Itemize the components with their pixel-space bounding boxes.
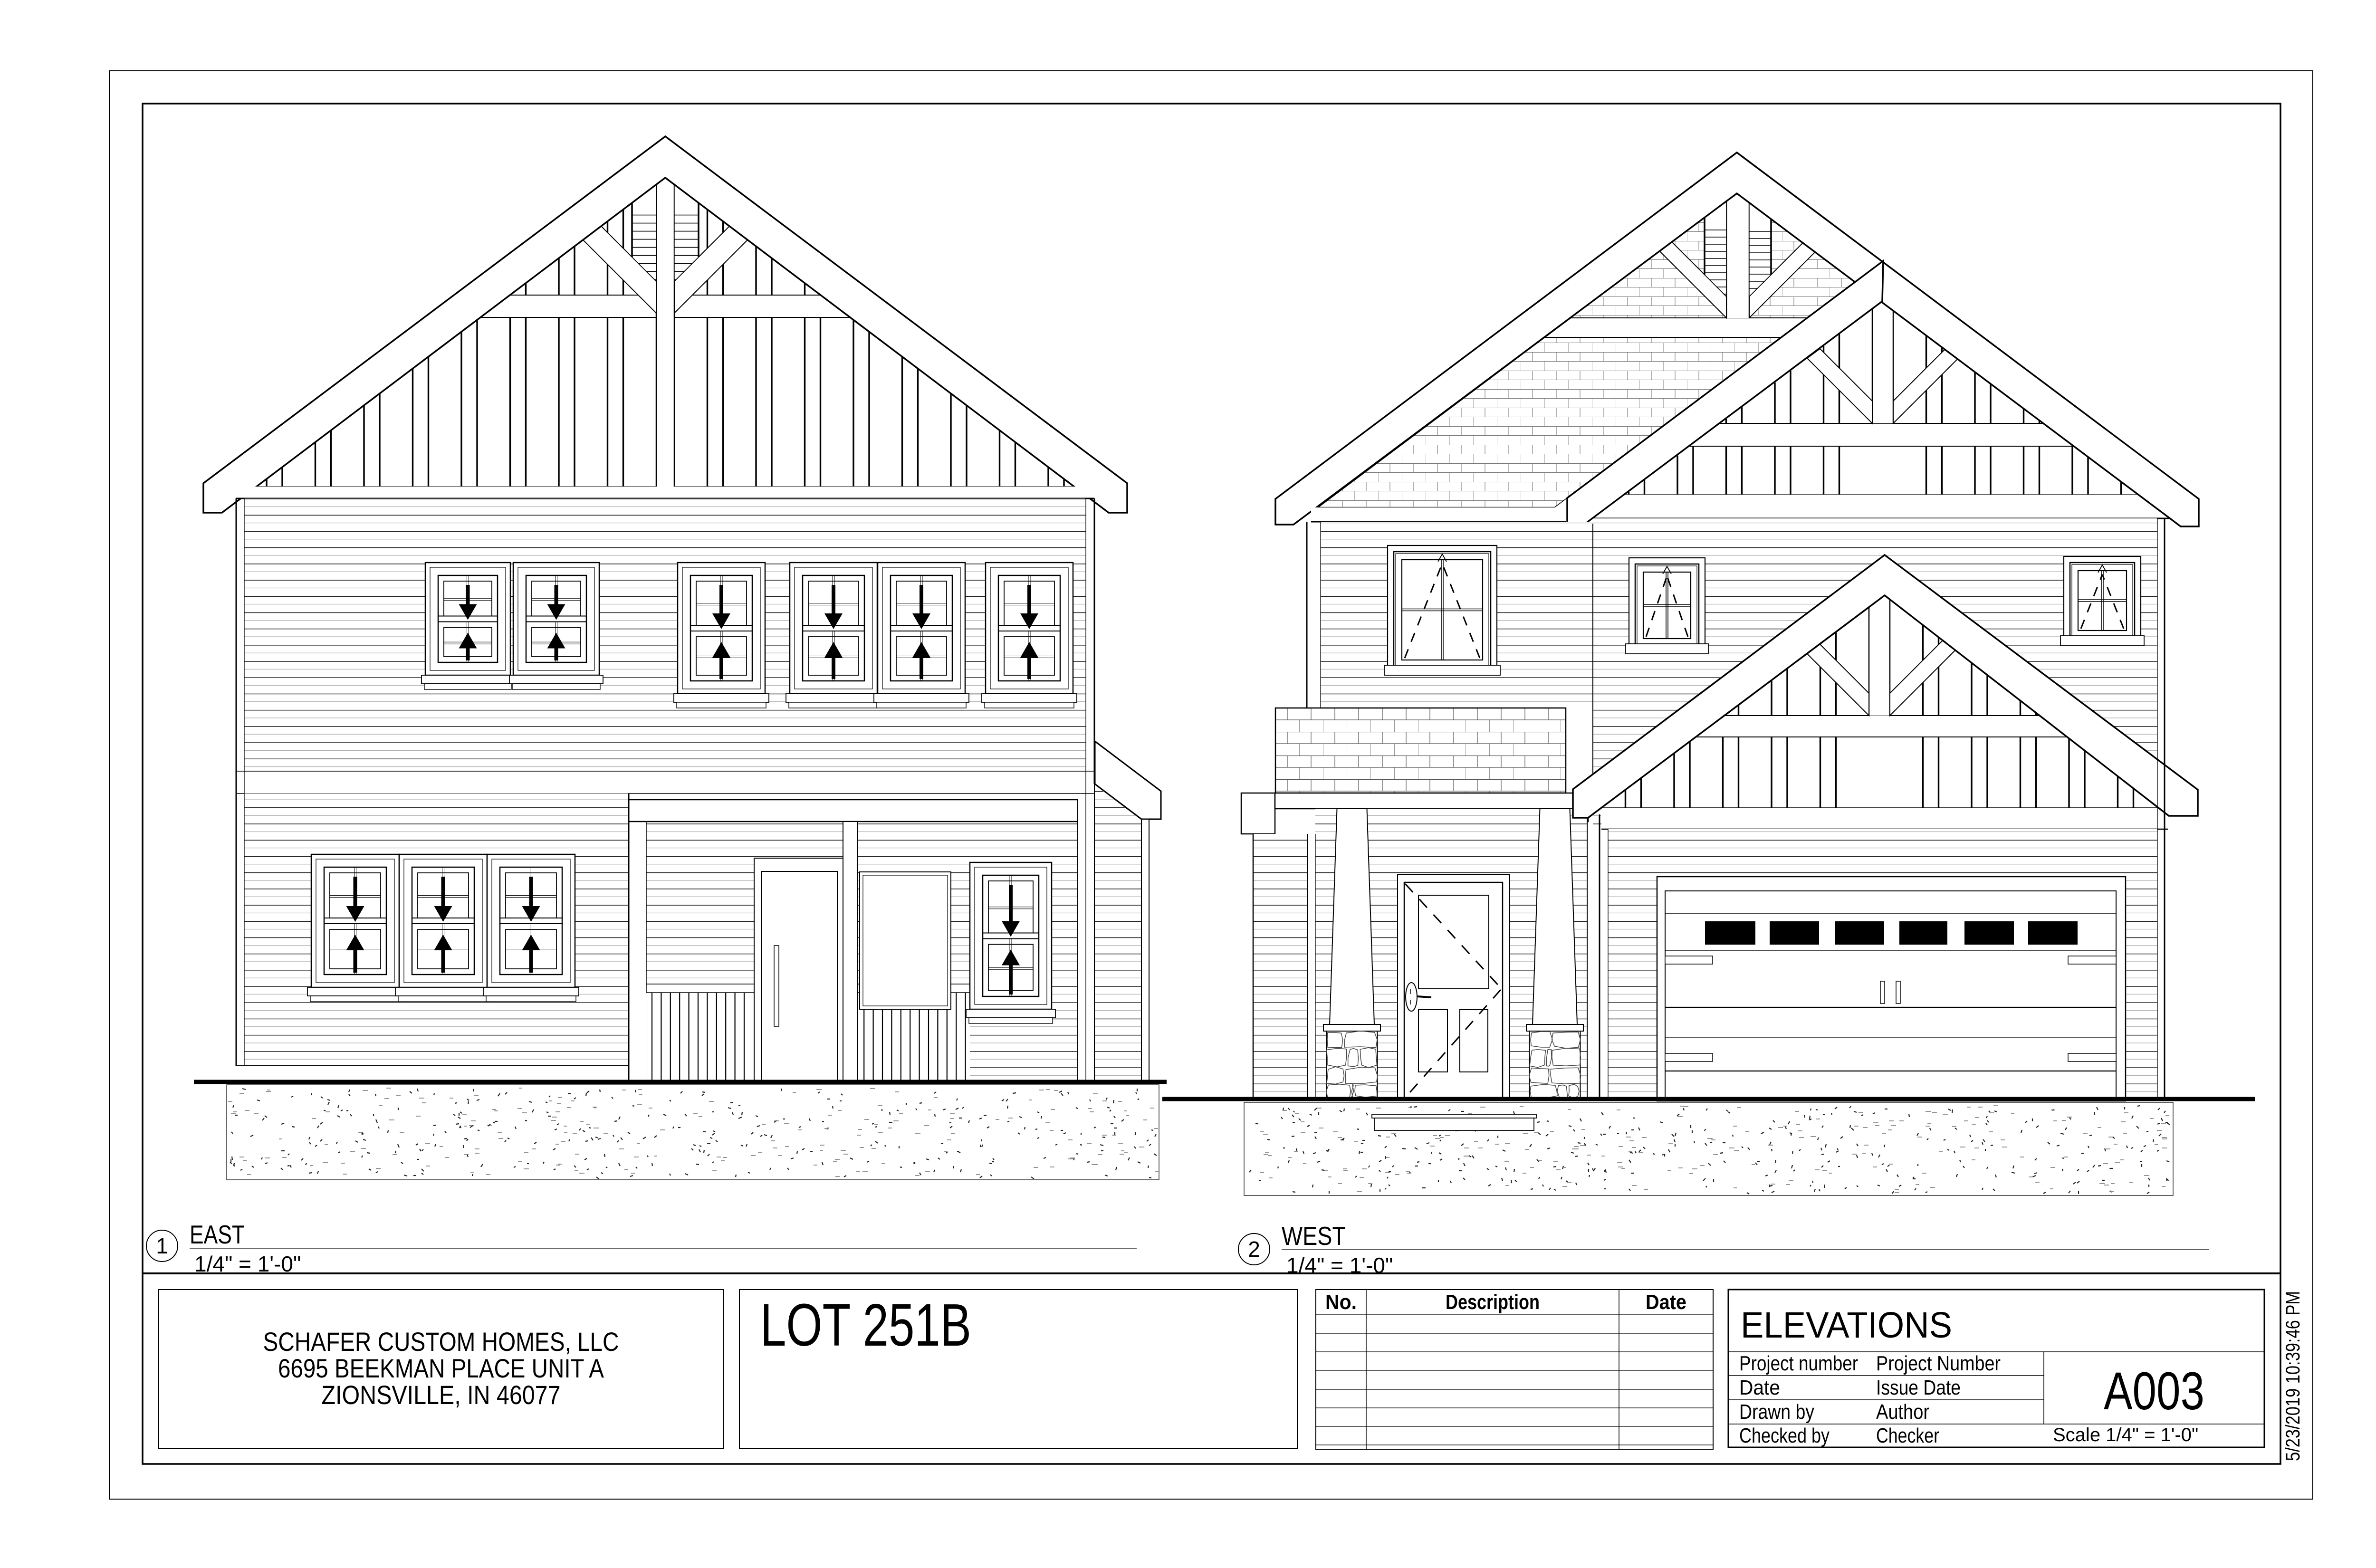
svg-text:2: 2	[1248, 1237, 1260, 1262]
svg-text:1: 1	[156, 1233, 168, 1258]
svg-text:Drawn by: Drawn by	[1739, 1400, 1814, 1424]
svg-text:Checker: Checker	[1876, 1424, 1939, 1447]
svg-text:No.: No.	[1325, 1291, 1357, 1314]
svg-text:1/4" = 1'-0": 1/4" = 1'-0"	[194, 1252, 301, 1276]
svg-text:SCHAFER CUSTOM HOMES, LLC: SCHAFER CUSTOM HOMES, LLC	[263, 1327, 619, 1357]
svg-text:Project Number: Project Number	[1876, 1352, 2001, 1375]
svg-text:Date: Date	[1739, 1376, 1780, 1399]
svg-text:ZIONSVILLE, IN 46077: ZIONSVILLE, IN 46077	[322, 1380, 561, 1410]
svg-text:LOT 251B: LOT 251B	[760, 1291, 971, 1358]
svg-text:Date: Date	[1646, 1291, 1686, 1314]
svg-text:Project number: Project number	[1739, 1352, 1858, 1375]
svg-text:1/4" = 1'-0": 1/4" = 1'-0"	[1286, 1253, 1393, 1278]
svg-text:A003: A003	[2104, 1361, 2204, 1421]
svg-text:Checked by: Checked by	[1739, 1424, 1830, 1447]
svg-text:Description: Description	[1446, 1291, 1540, 1314]
svg-text:WEST: WEST	[1282, 1221, 1346, 1251]
svg-text:Author: Author	[1876, 1400, 1929, 1424]
svg-text:EAST: EAST	[190, 1220, 245, 1249]
svg-text:Issue Date: Issue Date	[1876, 1376, 1961, 1399]
svg-text:5/23/2019 10:39:46 PM: 5/23/2019 10:39:46 PM	[2281, 1291, 2304, 1461]
svg-text:6695 BEEKMAN PLACE UNIT A: 6695 BEEKMAN PLACE UNIT A	[278, 1353, 604, 1383]
svg-text:ELEVATIONS: ELEVATIONS	[1741, 1305, 1952, 1346]
svg-text:Scale 1/4" = 1'-0": Scale 1/4" = 1'-0"	[2053, 1425, 2198, 1445]
